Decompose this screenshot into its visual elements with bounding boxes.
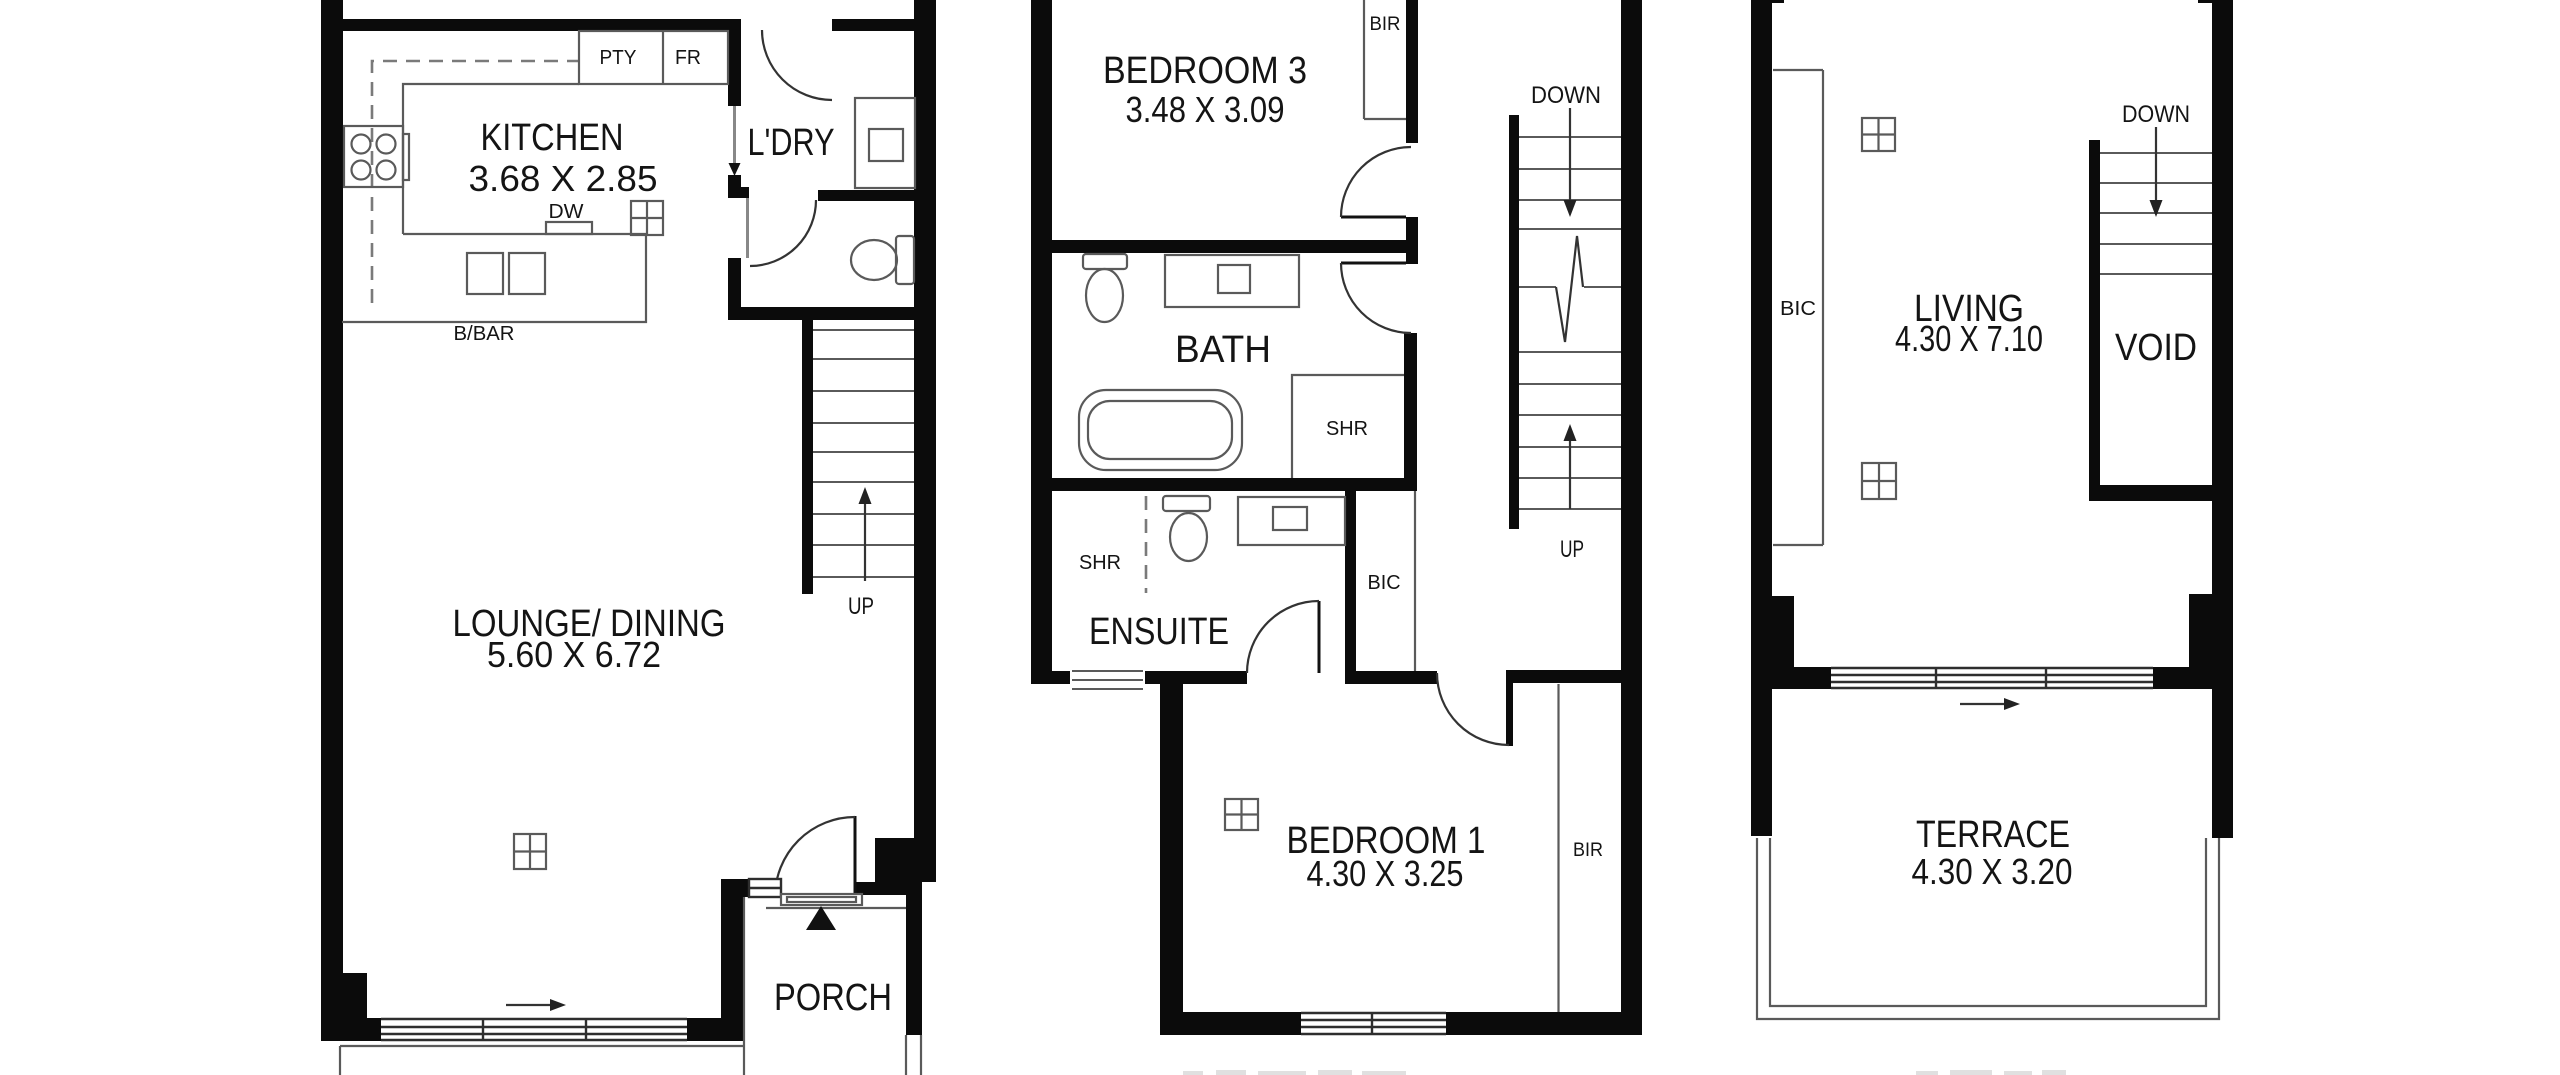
svg-text:BEDROOM 3: BEDROOM 3 (1103, 50, 1307, 92)
svg-text:BIR: BIR (1573, 840, 1603, 861)
svg-text:FR: FR (675, 47, 701, 69)
svg-text:4.30 X 3.20: 4.30 X 3.20 (1912, 851, 2073, 892)
svg-text:UP: UP (848, 593, 874, 620)
svg-text:KITCHEN: KITCHEN (481, 117, 624, 159)
svg-text:DOWN: DOWN (1531, 82, 1601, 109)
svg-text:ENSUITE: ENSUITE (1089, 611, 1229, 653)
svg-text:BIC: BIC (1368, 572, 1401, 594)
svg-text:PTY: PTY (600, 47, 637, 69)
svg-text:PORCH: PORCH (774, 977, 892, 1019)
svg-text:UP: UP (1560, 536, 1584, 563)
svg-text:4.30 X 7.10: 4.30 X 7.10 (1895, 318, 2043, 359)
svg-text:BATH: BATH (1175, 329, 1271, 371)
svg-text:4.30 X 3.25: 4.30 X 3.25 (1307, 853, 1464, 894)
svg-text:BIC: BIC (1780, 298, 1816, 320)
svg-text:DOWN: DOWN (2122, 101, 2190, 128)
svg-text:SHR: SHR (1326, 418, 1368, 440)
svg-text:L'DRY: L'DRY (748, 122, 835, 164)
svg-text:TERRACE: TERRACE (1916, 814, 2070, 856)
svg-text:VOID: VOID (2115, 327, 2197, 369)
svg-text:SHR: SHR (1079, 552, 1121, 574)
svg-text:3.68 X 2.85: 3.68 X 2.85 (469, 158, 658, 199)
svg-text:DW: DW (549, 201, 584, 223)
svg-text:BIR: BIR (1370, 14, 1401, 35)
svg-text:B/BAR: B/BAR (454, 323, 515, 345)
svg-text:5.60 X 6.72: 5.60 X 6.72 (487, 634, 661, 675)
svg-text:3.48 X 3.09: 3.48 X 3.09 (1126, 89, 1285, 130)
